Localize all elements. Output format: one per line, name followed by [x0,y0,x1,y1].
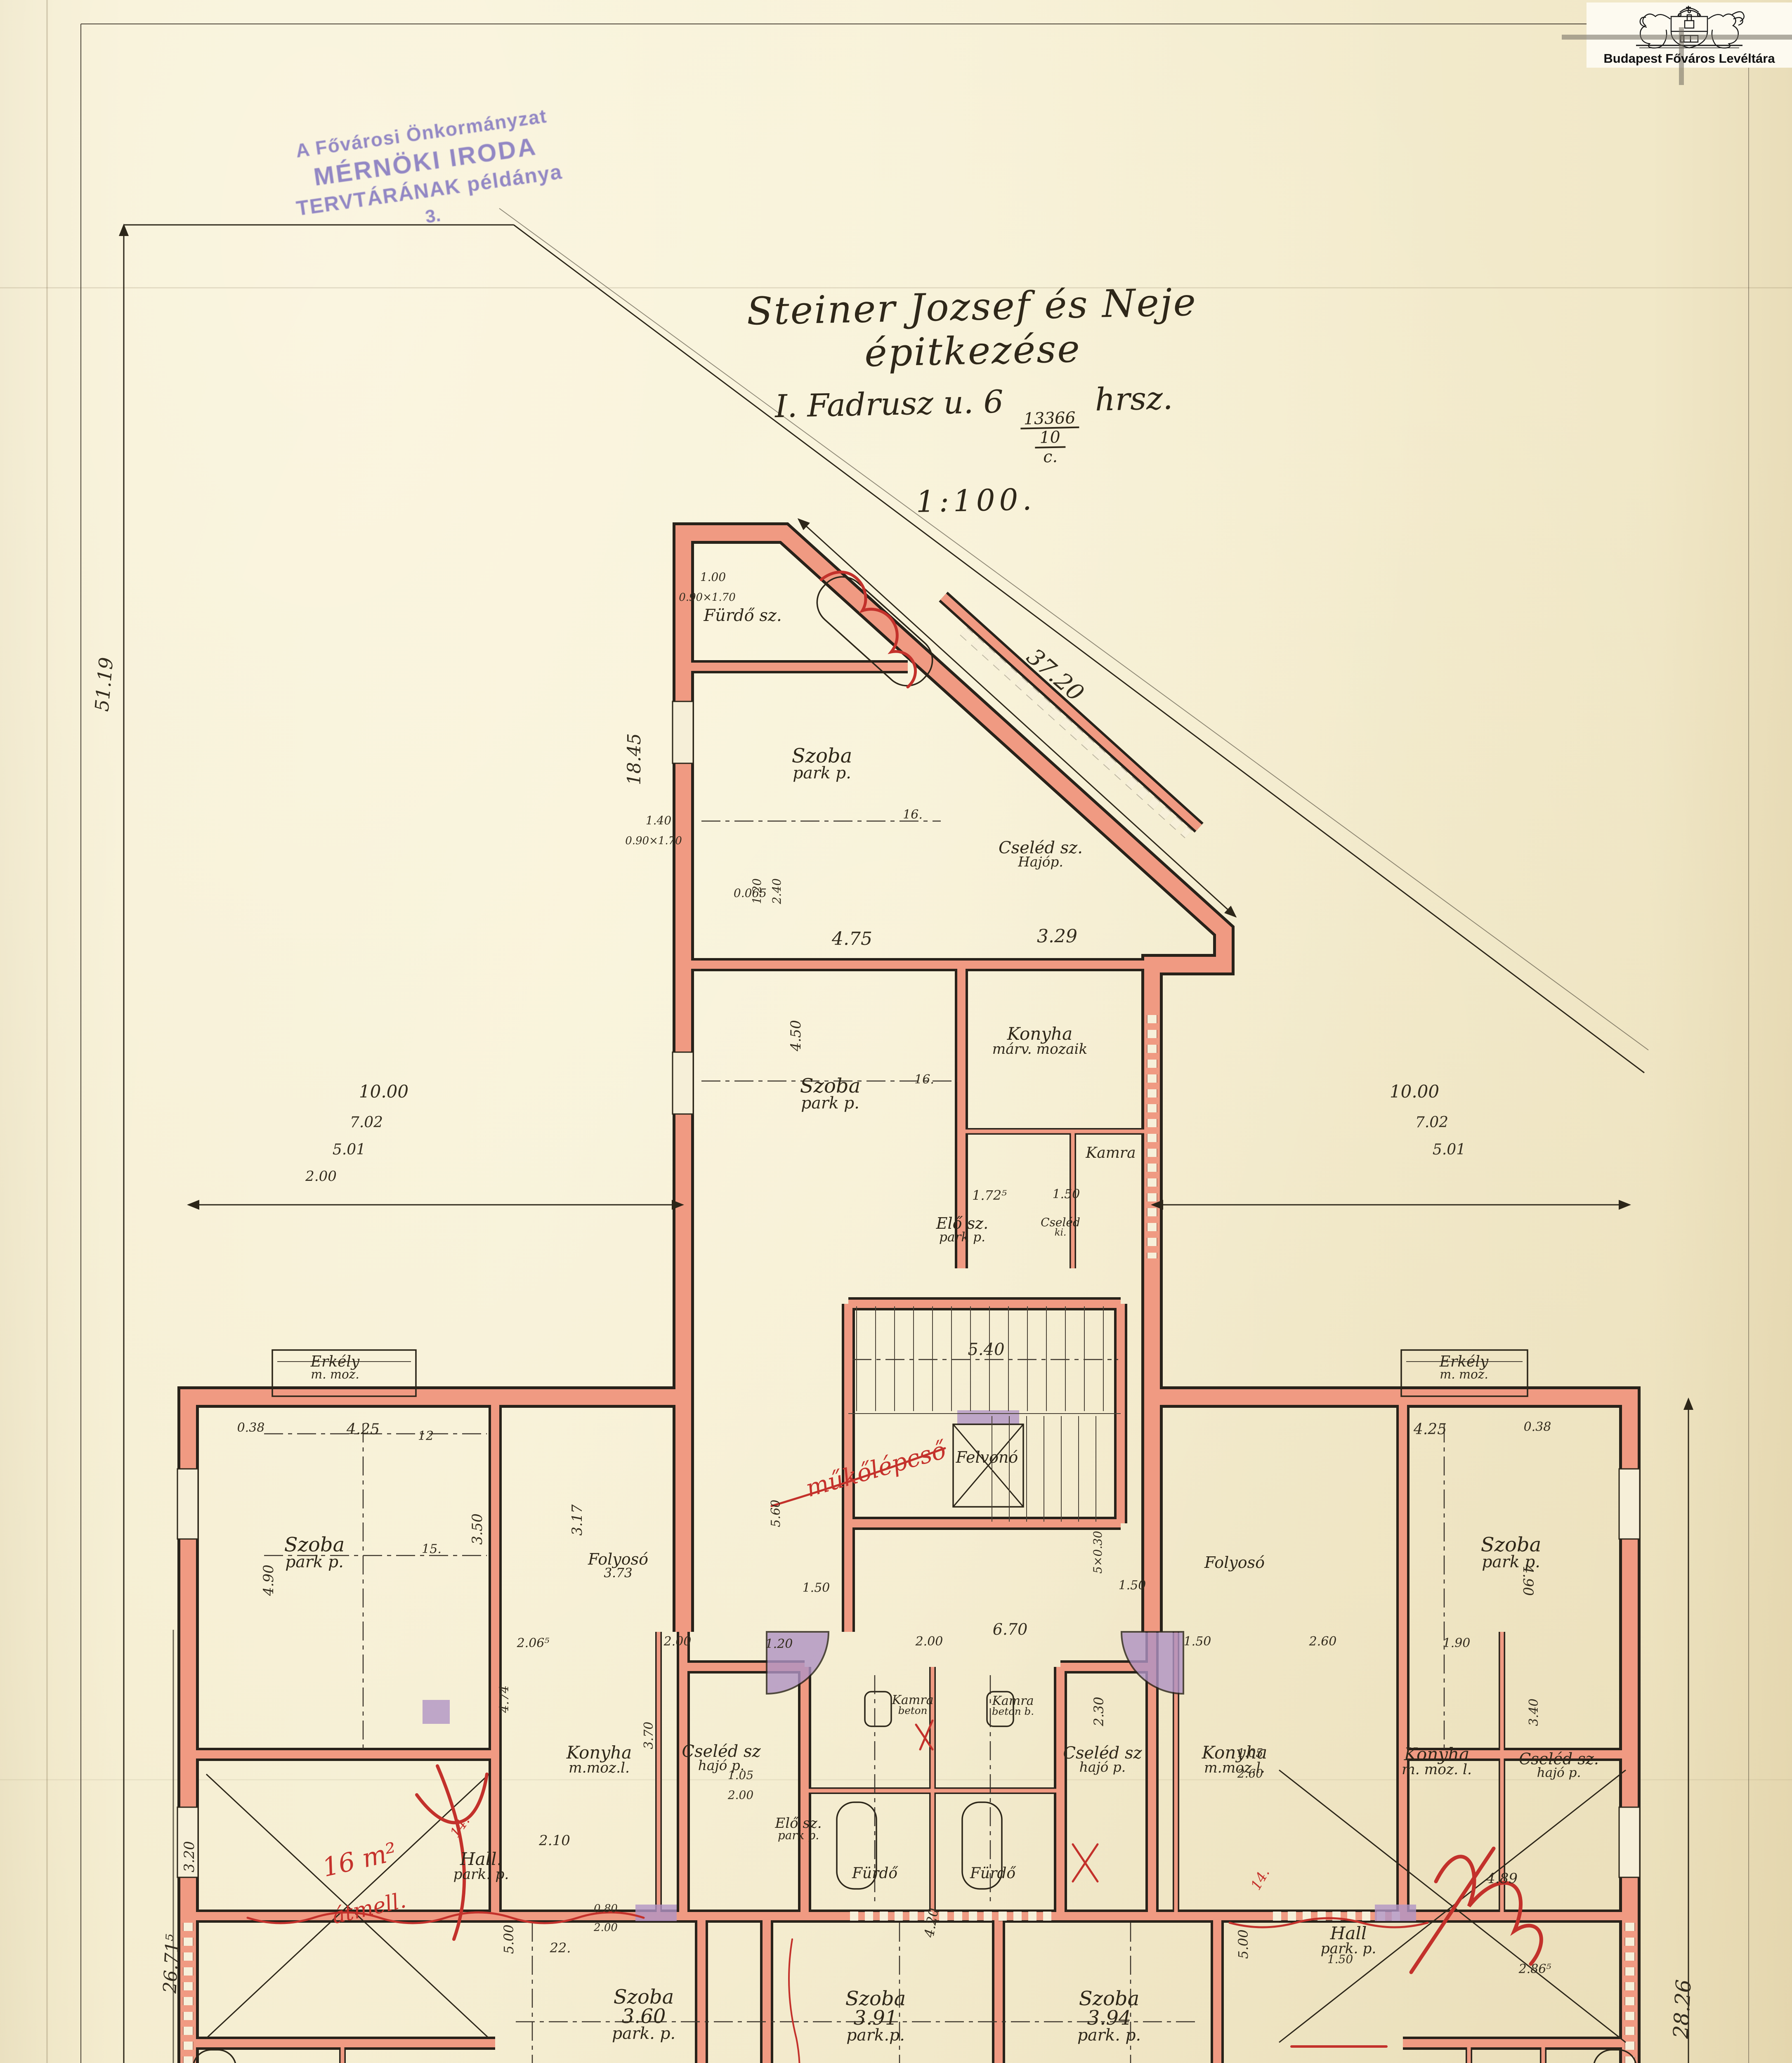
dim-label: 3.17 [569,1504,586,1536]
room-label: Kamrabeton [892,1693,934,1716]
room-label: Hall.park. p. [453,1849,509,1883]
dim-label: 28.26 [1669,1979,1695,2039]
room-label: Szoba3.60park. p. [612,1985,675,2043]
dim-label: 4.50 [788,1020,804,1052]
dim-label: 5×0.30 [1091,1531,1105,1574]
room-label: Cseléd sz.Hajóp. [999,838,1083,870]
fixtures [193,567,1636,2063]
red-note: 14. [1248,1865,1273,1893]
room-label: Konyham.moz.l. [566,1742,632,1776]
dim-label: 1.05 [728,1768,753,1782]
dim-label: 2.60 [1237,1767,1263,1780]
dim-label: 2.40 [770,878,784,904]
dim-label: 4.90 [1520,1564,1536,1596]
parcel-number-fraction: 13366 10 c. [1020,409,1080,466]
room-label: Elő sz.park p. [774,1815,822,1842]
room-label: Erkélym. moz. [1439,1353,1489,1381]
dim-label: 2.30 [1091,1697,1107,1726]
dim-label: 4.25 [346,1421,380,1438]
dim-label: 18.45 [624,733,645,785]
dim-label: 3.20 [181,1841,198,1872]
dim-label: 5.60 [769,1500,783,1527]
dim-label: 1.50 [1184,1634,1211,1649]
dimension-lines [188,1205,1630,2063]
dim-label: 7.02 [1415,1114,1448,1131]
dim-label: 1.72⁵ [972,1187,1007,1203]
dim-label: 2.00 [915,1634,943,1649]
staircase [848,1306,1121,1522]
dim-label: 10.00 [1390,1081,1439,1102]
dim-label: 3.29 [1037,926,1077,947]
room-label: Cseléd szhajó p. [1063,1744,1142,1775]
dim-label: 4.75 [831,928,872,949]
dim-label: 5.00 [1235,1929,1251,1959]
room-labels: Fürdő sz.Szobapark p.Cseléd sz.Hajóp.Szo… [194,606,1599,2063]
parcel-bot: c. [1043,448,1058,466]
dim-label: 1.05 [1237,1746,1263,1760]
dim-label: 22. [550,1940,571,1956]
title-address: I. Fadrusz u. 6 [774,383,1004,425]
dim-label: 1.50 [803,1581,830,1595]
dim-label: 0.80 [594,1902,618,1915]
dim-label: 2.06⁵ [517,1636,550,1650]
walls [188,533,1630,2063]
dim-label: 16. [903,807,923,822]
dim-label: 15. [422,1542,442,1556]
title-hrsz: hrsz. [1095,380,1173,418]
dim-label: 2.00 [663,1634,692,1649]
dimension-labels: 37.2018.451.000.90×1.704.504.753.2916.16… [90,570,1695,2063]
red-note: műkőlépcső [803,1435,950,1503]
dim-label: 5.01 [1433,1141,1466,1158]
room-label: Fürdő sz. [703,606,781,625]
red-note: 16 m² [319,1836,399,1883]
room-label: Szobapark p. [792,744,852,783]
room-label: Erkélym. moz. [310,1353,360,1381]
dim-label: 4.25 [1413,1421,1447,1438]
dim-label: 16. [914,1072,934,1087]
room-label: Konyham. moz. l. [1402,1744,1472,1778]
dim-label: 7.02 [350,1114,383,1131]
dim-label: 2.86⁵ [1518,1962,1551,1976]
dim-label: 1.90 [1443,1636,1471,1650]
room-label: Fürdő [970,1865,1016,1882]
dim-label: 3.50 [469,1513,486,1545]
archive-name: Budapest Főváros Levéltára [1587,51,1792,66]
room-label: Cseléd sz.hajó p. [1519,1750,1599,1780]
dim-label: 2.00 [305,1168,337,1185]
dim-label: 2.00 [727,1788,753,1802]
dim-label: 2.10 [538,1832,570,1849]
dim-label: 3.70 [642,1722,656,1749]
room-label: Hallpark. p. [1321,1923,1376,1957]
dim-label: 1.50 [1119,1578,1146,1593]
dim-label: 4.90 [260,1565,277,1596]
dim-label: 3.40 [1527,1699,1541,1726]
dim-label: 0.38 [237,1421,265,1435]
room-label: Folyosó [1204,1553,1265,1572]
dim-label: 1.50 [1327,1952,1353,1966]
dim-label: 5.00 [501,1924,517,1954]
dim-label: 26.71⁵ [159,1933,184,1994]
blueprint-page: Fürdő sz.Szobapark p.Cseléd sz.Hajóp.Szo… [0,0,1792,2063]
dim-label: 51.19 [90,656,117,713]
dim-label: 1.20 [765,1637,793,1651]
parcel-mid: 10 [1034,429,1065,448]
title-block: Steiner Jozsef és Neje épitkezése I. Fad… [649,278,1298,524]
room-label: Szoba3.94park. p. [1077,1987,1141,2045]
dim-label: 0.38 [1524,1420,1551,1434]
dim-label: 0.90×1.70 [679,591,736,604]
dim-label: 1.40 [646,814,671,827]
dim-label: 12 [418,1429,434,1443]
dim-label: 1.20 [750,878,764,904]
room-label: Kamra [1085,1145,1136,1161]
room-label: Szoba3.91park.p. [845,1987,906,2045]
room-label: Konyhamárv. mozaik [992,1024,1088,1057]
dim-label: 10.00 [359,1081,408,1102]
dim-label: 2.60 [1309,1634,1337,1649]
room-label: Kamrabeton b. [992,1694,1034,1717]
dim-label: 6.70 [993,1620,1028,1638]
dim-label: 1.50 [1053,1187,1080,1201]
dim-label: 1.00 [700,570,726,584]
room-label: Szobapark p. [800,1074,860,1113]
room-label: Folyosó3.73 [588,1550,648,1581]
archive-logo-box: Budapest Főváros Levéltára [1587,2,1792,68]
parcel-top: 13366 [1020,409,1079,430]
coat-of-arms-icon [1587,2,1792,51]
dim-label: 4.74 [497,1685,512,1714]
dim-label: 0.90×1.70 [625,835,682,847]
title-line2: I. Fadrusz u. 6 13366 10 c. hrsz. [652,377,1297,474]
room-label: Fürdő [852,1865,898,1882]
title-line1: Steiner Jozsef és Neje épitkezése [649,278,1295,380]
scan-grid-line-h [1562,35,1792,40]
room-label: Szobapark p. [284,1533,345,1572]
flue-squares [188,631,1630,2063]
dim-label: 4.89 [1486,1870,1518,1887]
axis-lines [198,821,1626,2063]
dim-label: 5.40 [968,1340,1004,1359]
dim-label: 2.00 [593,1921,618,1934]
room-label: Elő sz.park p. [936,1214,988,1245]
room-label: Felvonó [956,1448,1018,1466]
dim-label: 5.01 [333,1141,366,1158]
